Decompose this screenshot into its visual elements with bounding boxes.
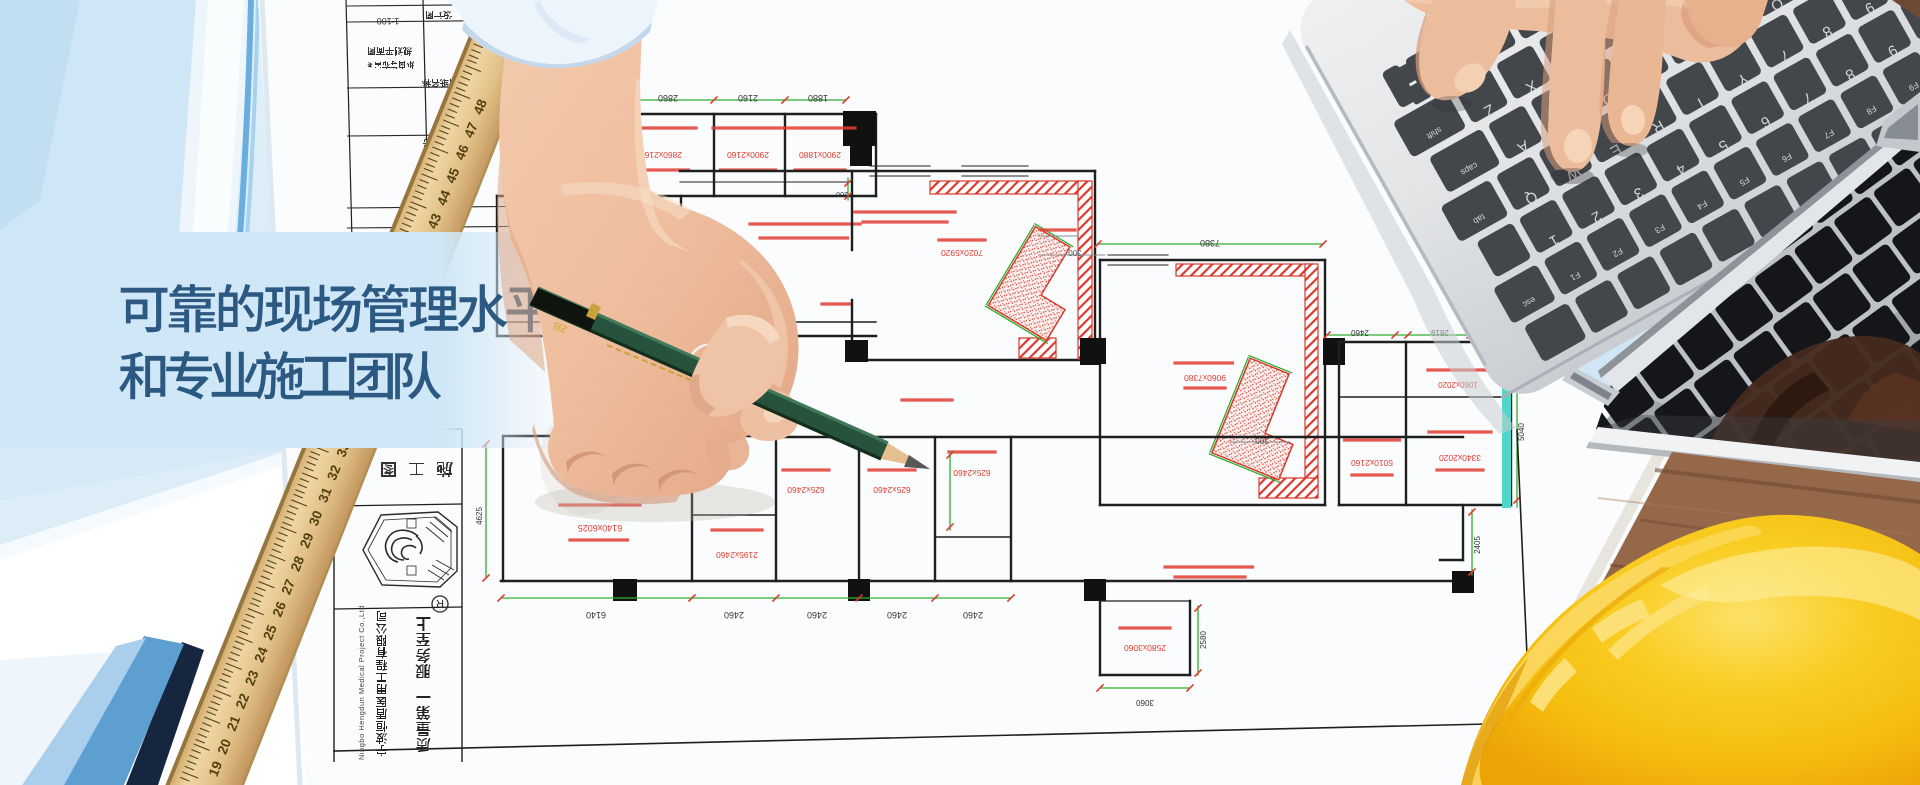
svg-text:3060: 3060: [1136, 698, 1154, 707]
svg-text:7020x5920: 7020x5920: [941, 248, 983, 258]
svg-text:200: 200: [836, 190, 848, 197]
svg-text:6140: 6140: [586, 610, 606, 620]
svg-text:2405: 2405: [1473, 536, 1482, 554]
svg-text:625x2460: 625x2460: [953, 468, 991, 478]
svg-text:2580: 2580: [1199, 631, 1208, 649]
svg-text:625x2460: 625x2460: [787, 485, 825, 495]
svg-text:2860: 2860: [658, 93, 678, 103]
svg-text:1:100: 1:100: [377, 16, 400, 26]
svg-text:2460: 2460: [1351, 328, 1369, 337]
svg-text:5040: 5040: [1517, 423, 1526, 441]
svg-text:2460: 2460: [807, 610, 827, 620]
svg-text:R: R: [436, 597, 444, 609]
svg-text:5010x2160: 5010x2160: [1351, 458, 1393, 468]
svg-text:Ningbo Hengdun Medical Project: Ningbo Hengdun Medical Project Co.,Ltd: [357, 605, 366, 760]
svg-text:1880: 1880: [808, 93, 828, 103]
svg-text:2460: 2460: [724, 610, 744, 620]
svg-text:2460: 2460: [963, 610, 983, 620]
svg-text:9060x7380: 9060x7380: [1184, 373, 1226, 383]
svg-text:7380: 7380: [1200, 238, 1220, 248]
svg-text:2460: 2460: [887, 610, 907, 620]
svg-text:625x2460: 625x2460: [873, 485, 911, 495]
svg-text:2580x3060: 2580x3060: [1124, 643, 1166, 653]
svg-text:2900x2160: 2900x2160: [727, 150, 769, 160]
svg-text:4625: 4625: [475, 507, 484, 525]
svg-text:2900x1880: 2900x1880: [799, 150, 841, 160]
svg-text:6140x6025: 6140x6025: [578, 523, 623, 533]
svg-text:2160: 2160: [738, 93, 758, 103]
svg-text:2860x2160: 2860x2160: [640, 150, 682, 160]
svg-text:3340x2020: 3340x2020: [1439, 453, 1481, 463]
svg-text:300: 300: [1068, 248, 1082, 257]
svg-text:2195x2460: 2195x2460: [716, 550, 758, 560]
